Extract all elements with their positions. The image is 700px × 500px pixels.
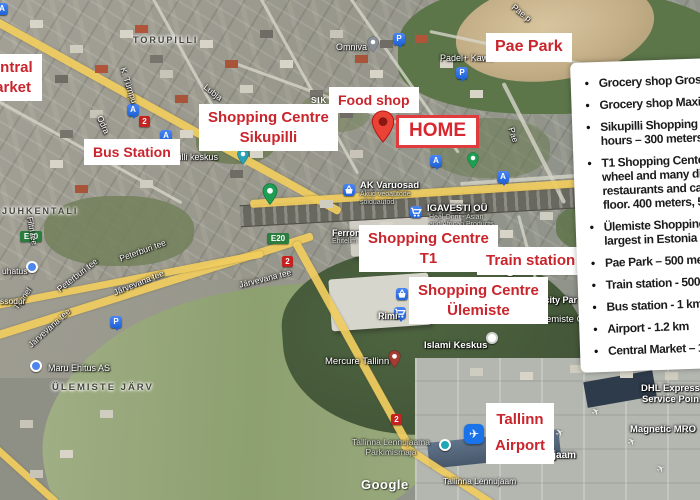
- route-2-shield-icon: 2: [139, 116, 150, 127]
- panel-line: hours – 300 meters: [600, 130, 700, 148]
- green-poi-pin-icon: [262, 183, 278, 205]
- parking-icon: P: [393, 33, 405, 45]
- shopping-basket-icon: [343, 184, 355, 196]
- home-pin-icon: [371, 110, 395, 143]
- bullet-icon: •: [584, 76, 598, 90]
- parking-icon: P: [110, 316, 122, 328]
- google-watermark: Google: [361, 477, 409, 492]
- panel-line: Train station - 500 m: [606, 274, 700, 292]
- poi-circle-icon: [30, 360, 42, 372]
- list-item: •Bus station - 1 km: [592, 290, 700, 314]
- panel-line: Bus station - 1 km: [606, 297, 700, 314]
- panel-line: Pae Park – 500 meter: [605, 252, 700, 270]
- poi-label-rimi: Rimi: [378, 311, 398, 321]
- poi-label-tallinna-lennujaam: Tallinna Lennujaam: [443, 476, 516, 486]
- bullet-icon: •: [586, 120, 601, 148]
- bullet-icon: •: [592, 300, 606, 314]
- district-label-juhkentali: JUHKENTALI: [2, 206, 78, 216]
- overlay-label-ulemiste: Shopping Centre Ülemiste: [409, 277, 548, 324]
- panel-line: Grocery shop Maxima: [599, 94, 700, 112]
- bus-stop-icon: A: [430, 155, 442, 167]
- airport-pin-icon: ✈: [464, 424, 484, 444]
- poi-label-dhl: DHL Express Service Poin: [641, 383, 700, 405]
- green-poi-pin-icon: [467, 152, 479, 169]
- route-2-shield-icon: 2: [391, 414, 402, 425]
- bullet-icon: •: [591, 256, 605, 270]
- list-item: •Train station - 500 m: [592, 268, 700, 292]
- map-stage: ✈ ✈ ✈ ✈ ✈ E20 E20 2 2 2 A A A A A P P P …: [0, 0, 700, 500]
- poi-label-magnetic-mro: Magnetic MRO: [630, 424, 696, 435]
- bullet-icon: •: [594, 344, 608, 358]
- bus-stop-icon: A: [497, 171, 509, 183]
- overlay-label-bus-station: Bus Station: [84, 139, 180, 165]
- overlay-label-pae-park: Pae Park: [486, 33, 572, 62]
- grey-poi-pin-icon: [367, 36, 379, 53]
- list-item: •Grocery shop Maxima: [585, 88, 700, 112]
- poi-sublabel: Ehitelim: [332, 238, 357, 245]
- shopping-cart-icon: [410, 206, 422, 218]
- poi-label-maru-ehitus: Maru Ehitus AS: [48, 363, 110, 373]
- panel-line: floor. 400 meters, 5: [603, 194, 700, 212]
- panel-line: Central Market – 1.5: [608, 340, 700, 358]
- poi-sublabel: sõiduautod: [360, 199, 394, 206]
- poi-label-mercure: Mercure Tallinn: [325, 356, 389, 367]
- hotel-pin-icon: [388, 350, 401, 368]
- distances-panel: •Grocery shop Grossi •Grocery shop Maxim…: [570, 52, 700, 373]
- poi-label-parkimismaja: Tallinna Lennujaama Parkimismaja: [352, 437, 430, 457]
- overlay-label-central-market: Central Market: [0, 54, 42, 101]
- route-2-shield-icon: 2: [282, 256, 293, 267]
- poi-label-islami-keskus: Islami Keskus: [424, 340, 487, 351]
- overlay-label-train-station: Train station: [477, 247, 584, 275]
- bullet-icon: •: [585, 98, 599, 112]
- bullet-icon: •: [590, 220, 605, 248]
- overlay-label-home: HOME: [396, 115, 479, 148]
- bus-stop-icon: A: [127, 104, 139, 116]
- bullet-icon: •: [592, 278, 606, 292]
- parking-icon: P: [456, 67, 468, 79]
- list-item: •Airport - 1.2 km: [593, 312, 700, 336]
- list-item: •Central Market – 1.5: [594, 334, 700, 358]
- poi-label-omniva: Omniva: [336, 42, 367, 52]
- poi-sublabel: Akud veoautode: [360, 191, 411, 198]
- e20-shield-icon: E20: [267, 233, 289, 244]
- parking-garage-icon: [439, 439, 451, 451]
- list-item: •Ülemiste Shopping Clargest in Estonia -…: [590, 210, 700, 248]
- poi-label-ak-varuosad: AK Varuosad: [360, 180, 419, 191]
- distances-list: •Grocery shop Grossi •Grocery shop Maxim…: [584, 66, 700, 358]
- list-item: •T1 Shopping Centerwheel and many diffre…: [587, 146, 700, 212]
- panel-line: Airport - 1.2 km: [607, 319, 689, 336]
- overlay-label-sikupilli: Shopping Centre Sikupilli: [199, 104, 338, 151]
- panel-line: largest in Estonia - 5: [604, 230, 700, 248]
- poi-label-fragment: uhatus: [2, 266, 28, 276]
- poi-sublabel: Heal Onni - Asian: [429, 214, 483, 221]
- lake-label-ulemiste-jarv: ÜLEMISTE JÄRV: [52, 382, 154, 393]
- overlay-label-tallinn-airport: Tallinn Airport: [486, 403, 554, 464]
- panel-line: Grocery shop Grossi: [598, 72, 700, 90]
- poi-label-fragment: ssodur: [0, 296, 26, 306]
- list-item: •Sikupilli Shopping Cehours – 300 meters: [586, 110, 700, 148]
- mosque-icon: [486, 332, 498, 344]
- bullet-icon: •: [593, 322, 607, 336]
- poi-label-igavesti: IGAVESTI OÜ: [427, 203, 488, 214]
- district-label-torupilli: TORUPILLI: [133, 35, 198, 45]
- list-item: •Pae Park – 500 meter: [591, 246, 700, 270]
- shopping-basket-icon: [396, 288, 408, 300]
- list-item: •Grocery shop Grossi: [584, 66, 700, 90]
- bus-stop-icon: A: [0, 3, 8, 15]
